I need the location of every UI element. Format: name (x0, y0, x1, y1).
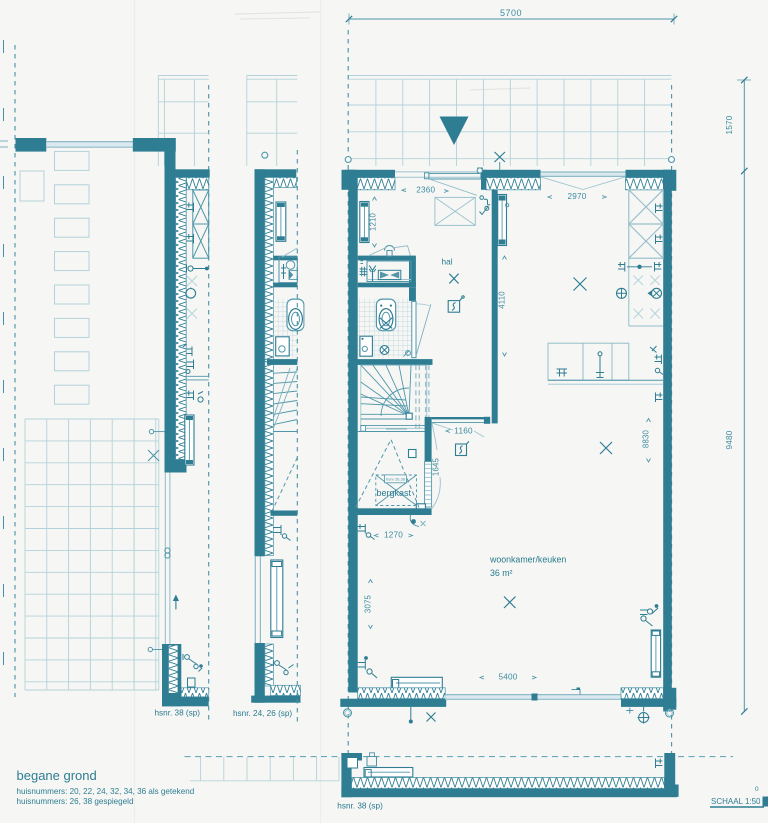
svg-text:bergkast: bergkast (377, 488, 412, 498)
svg-text:9480: 9480 (725, 430, 734, 449)
svg-text:huisnummers: 20, 22, 24, 32, 3: huisnummers: 20, 22, 24, 32, 34, 36 als … (17, 787, 195, 796)
svg-text:5700: 5700 (500, 8, 522, 18)
svg-text:36 m²: 36 m² (490, 568, 513, 578)
svg-text:hal: hal (442, 257, 453, 267)
svg-text:begane grond: begane grond (17, 768, 97, 783)
svg-text:1570: 1570 (725, 115, 734, 134)
svg-text:0: 0 (755, 786, 759, 793)
svg-text:4110: 4110 (498, 291, 507, 309)
svg-text:SCHAAL 1:50: SCHAAL 1:50 (711, 797, 761, 806)
svg-text:2360: 2360 (416, 186, 435, 195)
svg-text:5400: 5400 (498, 673, 517, 682)
svg-text:1160: 1160 (454, 427, 473, 436)
svg-text:1645: 1645 (432, 457, 441, 476)
svg-text:woonkamer/keuken: woonkamer/keuken (489, 555, 566, 565)
svg-text:hsnr. 24, 26 (sp): hsnr. 24, 26 (sp) (233, 709, 292, 718)
svg-text:hsnr. 38 (sp): hsnr. 38 (sp) (337, 802, 383, 811)
svg-text:2970: 2970 (567, 192, 586, 201)
svg-text:8830: 8830 (642, 429, 651, 448)
svg-text:1210: 1210 (369, 212, 378, 231)
svg-text:hsnr 26,38: hsnr 26,38 (386, 477, 406, 482)
svg-text:3075: 3075 (364, 594, 373, 613)
svg-text:huisnummers: 26, 38 gespiegeld: huisnummers: 26, 38 gespiegeld (17, 797, 134, 806)
svg-text:1270: 1270 (384, 531, 403, 540)
svg-text:hsnr. 38 (sp): hsnr. 38 (sp) (155, 709, 201, 718)
